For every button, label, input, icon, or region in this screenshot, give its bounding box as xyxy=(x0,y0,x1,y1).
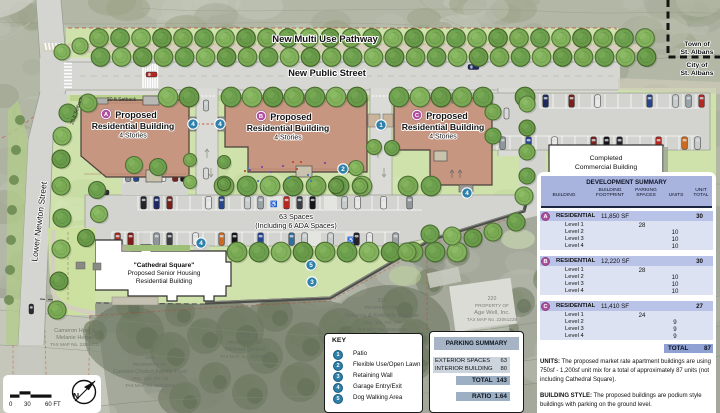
svg-text:TAX MAP No. 22054009: TAX MAP No. 22054009 xyxy=(125,383,175,388)
svg-text:20 ft Setback: 20 ft Setback xyxy=(107,97,137,103)
svg-text:Age Well, Inc.: Age Well, Inc. xyxy=(474,310,510,316)
svg-text:New Multi Use Pathway: New Multi Use Pathway xyxy=(272,34,378,45)
svg-text:Proposed: Proposed xyxy=(270,112,312,122)
svg-text:Residential Building: Residential Building xyxy=(402,122,485,132)
svg-text:VOL. 151, PG. 2-9: VOL. 151, PG. 2-9 xyxy=(363,320,401,325)
svg-text:St. Albans: St. Albans xyxy=(681,70,714,77)
svg-text:St. Albans: St. Albans xyxy=(681,49,714,56)
svg-text:009: 009 xyxy=(145,355,154,361)
svg-text:Proposed Senior Housing: Proposed Senior Housing xyxy=(128,270,201,277)
svg-text:4 Stories: 4 Stories xyxy=(119,133,147,140)
svg-text:214: 214 xyxy=(241,333,250,339)
svg-text:Cameron Hunt &: Cameron Hunt & xyxy=(54,328,96,334)
svg-text:PROPERTY OF: PROPERTY OF xyxy=(365,305,399,311)
svg-text:222: 222 xyxy=(378,298,387,304)
svg-text:Proposed: Proposed xyxy=(115,110,157,120)
svg-text:Proposed: Proposed xyxy=(426,111,468,121)
svg-text:Melanie Hurrell: Melanie Hurrell xyxy=(56,335,94,341)
svg-text:VOL. 125, PG. 30: VOL. 125, PG. 30 xyxy=(132,376,169,381)
svg-text:TAX MAP No. 22061228: TAX MAP No. 22061228 xyxy=(467,317,517,322)
svg-text:♿: ♿ xyxy=(270,200,278,208)
svg-text:Gregory & Kimberly Douglas: Gregory & Kimberly Douglas xyxy=(345,313,419,319)
svg-text:City of: City of xyxy=(686,62,708,69)
svg-text:"Cathedral Square": "Cathedral Square" xyxy=(134,262,195,269)
svg-text:220: 220 xyxy=(488,296,497,302)
svg-text:3: 3 xyxy=(310,279,314,286)
svg-text:4: 4 xyxy=(218,121,222,128)
svg-text:2: 2 xyxy=(341,166,345,173)
svg-text:1: 1 xyxy=(379,122,383,129)
svg-text:(Including 6 ADA Spaces): (Including 6 ADA Spaces) xyxy=(255,221,337,230)
svg-text:Town of: Town of xyxy=(684,41,710,48)
svg-text:PROPERTY OF: PROPERTY OF xyxy=(475,303,509,309)
svg-text:60 FT: 60 FT xyxy=(45,402,61,408)
svg-text:4: 4 xyxy=(191,121,195,128)
svg-text:N: N xyxy=(73,391,79,401)
svg-text:TAX MAP No. 22054013: TAX MAP No. 22054013 xyxy=(357,327,407,332)
svg-text:63 Spaces: 63 Spaces xyxy=(279,212,313,221)
svg-text:PROPERTY OF: PROPERTY OF xyxy=(133,362,167,368)
svg-text:Commercial Building: Commercial Building xyxy=(575,164,638,171)
svg-text:Residential Building: Residential Building xyxy=(247,123,330,133)
svg-text:4 Stories: 4 Stories xyxy=(429,134,457,141)
svg-text:Carmen Chabot Family Trust: Carmen Chabot Family Trust xyxy=(113,369,187,375)
svg-text:Michael Corbeil: Michael Corbeil xyxy=(225,347,265,353)
svg-text:Residential Building: Residential Building xyxy=(92,121,175,131)
svg-text:5: 5 xyxy=(309,262,313,269)
svg-text:New Public Street: New Public Street xyxy=(288,68,366,78)
svg-text:B: B xyxy=(259,114,263,120)
svg-text:Residential Building: Residential Building xyxy=(136,278,193,285)
svg-text:4: 4 xyxy=(199,240,203,247)
svg-text:TAX MAP No. 22054011: TAX MAP No. 22054011 xyxy=(50,342,100,347)
svg-text:30: 30 xyxy=(24,402,31,408)
svg-text:TAX MAP No. 22054012: TAX MAP No. 22054012 xyxy=(220,354,270,359)
svg-text:4: 4 xyxy=(465,190,469,197)
svg-text:4 Stories: 4 Stories xyxy=(274,135,302,142)
svg-text:Completed: Completed xyxy=(590,155,623,162)
svg-text:PROPERTY OF: PROPERTY OF xyxy=(228,340,262,346)
